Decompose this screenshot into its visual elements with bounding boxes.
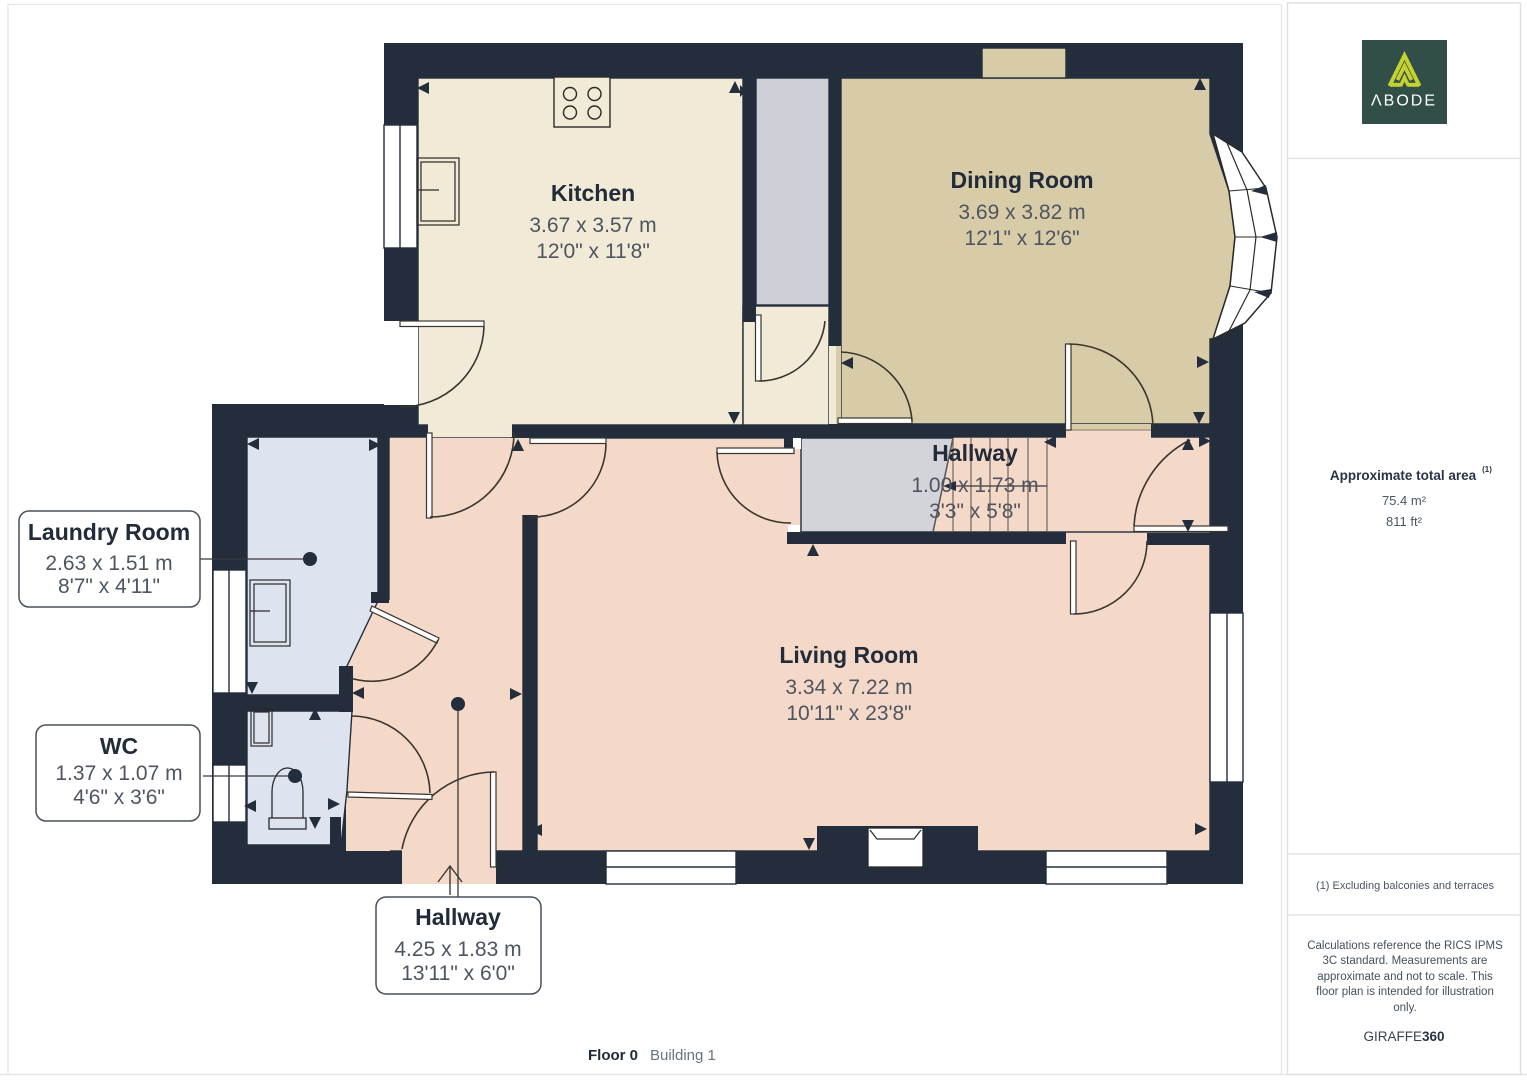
- svg-text:12'1" x 12'6": 12'1" x 12'6": [964, 227, 1079, 250]
- svg-text:floor plan is intended for ill: floor plan is intended for illustration: [1316, 986, 1494, 998]
- svg-text:8'7" x 4'11": 8'7" x 4'11": [58, 575, 160, 598]
- svg-text:Living Room: Living Room: [779, 642, 918, 668]
- svg-text:2.63 x 1.51 m: 2.63 x 1.51 m: [45, 552, 172, 575]
- svg-text:Hallway: Hallway: [932, 440, 1018, 466]
- svg-text:Calculations reference the RIC: Calculations reference the RICS IPMS: [1307, 940, 1503, 952]
- svg-text:approximate and not to scale.: approximate and not to scale. This: [1317, 971, 1493, 983]
- svg-text:Kitchen: Kitchen: [551, 180, 635, 206]
- svg-text:only.: only.: [1393, 1002, 1416, 1014]
- svg-text:ΛBODE: ΛBODE: [1371, 93, 1437, 110]
- svg-text:(1): (1): [1482, 465, 1492, 474]
- svg-text:75.4 m²: 75.4 m²: [1382, 493, 1427, 508]
- svg-text:Floor 0: Floor 0: [588, 1047, 638, 1064]
- svg-text:4'6" x 3'6": 4'6" x 3'6": [73, 786, 165, 809]
- svg-text:GIRAFFE360: GIRAFFE360: [1363, 1029, 1444, 1044]
- svg-text:3'3" x 5'8": 3'3" x 5'8": [929, 500, 1021, 523]
- svg-text:12'0" x 11'8": 12'0" x 11'8": [536, 240, 650, 263]
- svg-text:811 ft²: 811 ft²: [1386, 514, 1423, 529]
- svg-text:3.67 x 3.57 m: 3.67 x 3.57 m: [529, 214, 656, 237]
- svg-text:3.69 x 3.82 m: 3.69 x 3.82 m: [958, 201, 1085, 224]
- svg-text:1.00 x 1.73 m: 1.00 x 1.73 m: [911, 474, 1038, 497]
- svg-text:3.34 x 7.22 m: 3.34 x 7.22 m: [785, 676, 912, 699]
- svg-text:(1) Excluding balconies and te: (1) Excluding balconies and terraces: [1316, 880, 1494, 892]
- svg-text:1.37 x 1.07 m: 1.37 x 1.07 m: [55, 762, 182, 785]
- svg-text:Approximate total area: Approximate total area: [1330, 468, 1477, 483]
- svg-text:4.25 x 1.83 m: 4.25 x 1.83 m: [394, 938, 521, 961]
- svg-text:13'11" x 6'0": 13'11" x 6'0": [401, 962, 515, 985]
- svg-text:3C standard. Measurements are: 3C standard. Measurements are: [1323, 955, 1488, 967]
- svg-text:Dining Room: Dining Room: [950, 167, 1093, 193]
- svg-text:Hallway: Hallway: [415, 904, 501, 930]
- svg-text:WC: WC: [100, 733, 138, 759]
- svg-text:10'11" x 23'8": 10'11" x 23'8": [786, 702, 911, 725]
- svg-text:Laundry Room: Laundry Room: [28, 519, 190, 545]
- svg-text:Building 1: Building 1: [650, 1047, 716, 1064]
